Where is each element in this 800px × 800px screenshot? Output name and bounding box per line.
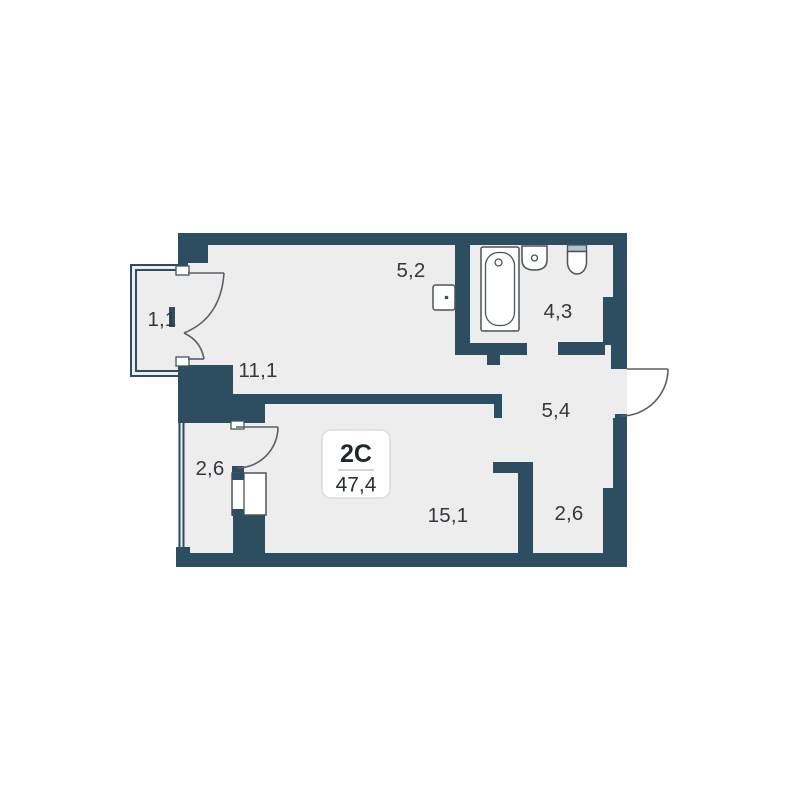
wall-bottom (178, 553, 627, 567)
wall-bathroom-left (455, 233, 470, 355)
sink-icon (522, 246, 547, 270)
wall-above-loggia (178, 394, 265, 423)
floorplan-canvas: 2C 47,4 1,1 11,1 5,2 4,3 5,4 2,6 15,1 2,… (0, 0, 800, 800)
room-label-hallway: 5,4 (541, 399, 570, 422)
wall-bathroom-bottom-right (558, 342, 605, 355)
wall-closet (518, 473, 533, 555)
wall-left-upper (178, 233, 188, 269)
wall-interior-return (494, 404, 502, 418)
balcony-door-top-jamb (176, 266, 189, 275)
toilet-icon (568, 245, 587, 274)
balcony-door-bottom-jamb (176, 357, 189, 366)
toilet-tank (568, 245, 587, 252)
wall-right-top (613, 233, 627, 297)
bathtub-icon (481, 247, 519, 331)
wall-right-thick-upper (603, 297, 627, 345)
unit-total-area: 47,4 (336, 474, 377, 497)
wall-loggia-divider-low (233, 515, 265, 555)
entry-door-arc (621, 369, 668, 416)
washing-machine-dot (445, 296, 449, 300)
wall-right-thick-lower (603, 488, 627, 567)
room-label-loggia: 2,6 (195, 457, 224, 480)
wall-bathroom-stub (487, 355, 500, 365)
unit-info-box: 2C 47,4 (322, 430, 390, 498)
floorplan-svg: 2C 47,4 1,1 11,1 5,2 4,3 5,4 2,6 15,1 2,… (0, 0, 800, 800)
room-label-living-room: 15,1 (428, 504, 469, 527)
loggia-thin-wall-inner (183, 423, 185, 553)
bathtub-drain (495, 259, 502, 266)
wall-right-above-door (611, 345, 627, 369)
wardrobe-icon (232, 473, 266, 516)
sink-drain (532, 255, 538, 261)
wall-interior-horizontal (265, 394, 502, 404)
wall-bathroom-bottom-left (455, 343, 527, 355)
wall-right-below-door (613, 418, 627, 488)
room-label-wardrobe-nook: 2,6 (554, 502, 583, 525)
unit-type-label: 2C (340, 440, 372, 468)
room-label-bathroom: 4,3 (543, 300, 572, 323)
loggia-thin-wall-outer (179, 423, 181, 553)
wall-closet-stub (493, 462, 533, 473)
wardrobe-cap-top (232, 473, 244, 480)
wardrobe-cap-bottom (232, 509, 244, 516)
room-label-kitchen-living: 11,1 (238, 359, 277, 382)
room-label-kitchen-niche: 5,2 (396, 259, 425, 282)
wall-top (178, 233, 627, 245)
toilet-bowl (568, 252, 587, 275)
washing-machine-body (433, 285, 455, 310)
washing-machine-icon (433, 285, 455, 310)
room-label-balcony: 1,1 (147, 308, 176, 331)
